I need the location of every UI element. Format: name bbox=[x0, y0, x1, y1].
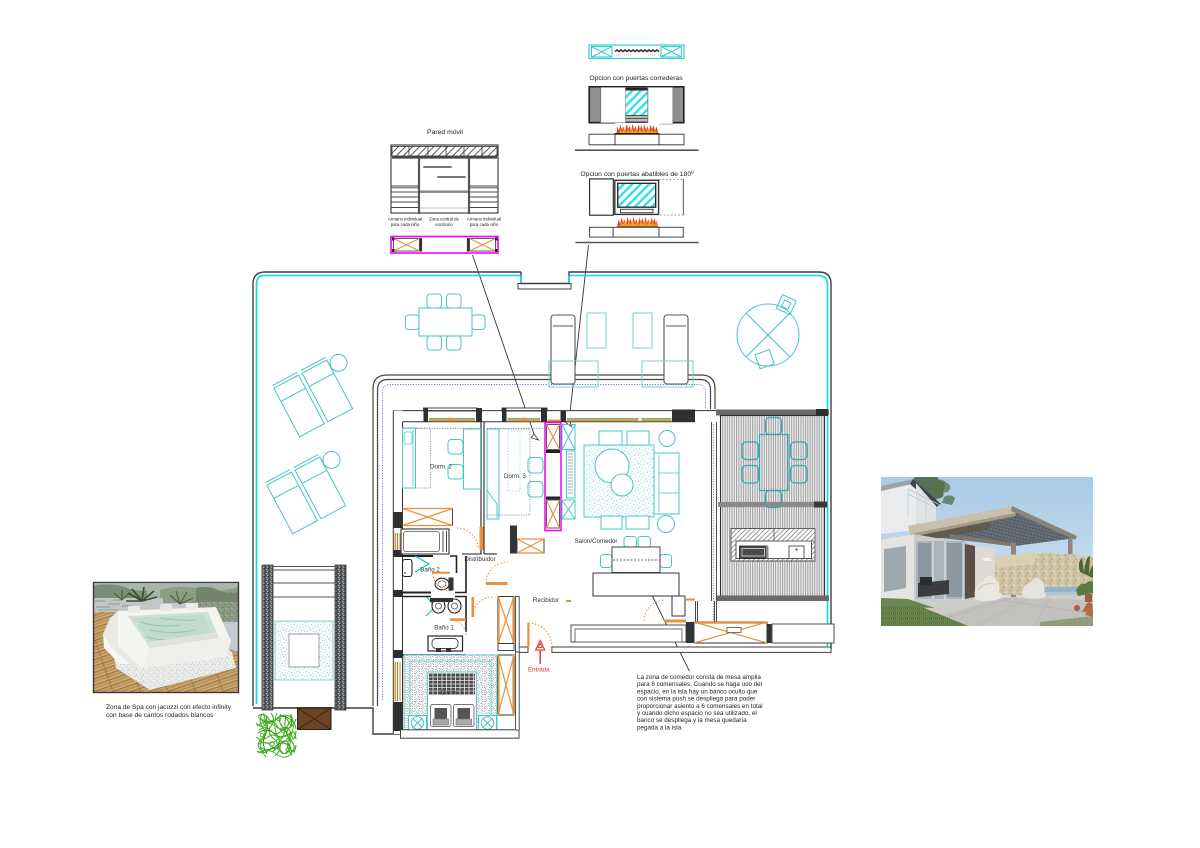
svg-text:Opcion con puertas correderas: Opcion con puertas correderas bbox=[589, 75, 683, 82]
svg-text:Baño 1: Baño 1 bbox=[434, 625, 454, 632]
svg-text:pegada a la isla.: pegada a la isla. bbox=[637, 724, 683, 731]
svg-text:La zona de comedor consta de m: La zona de comedor consta de mesa amplia bbox=[637, 674, 761, 681]
svg-text:Zona de Spa con jacuzzi con ef: Zona de Spa con jacuzzi con efecto infin… bbox=[106, 704, 232, 711]
svg-text:Zona central de: Zona central de bbox=[429, 217, 459, 222]
svg-text:proporcionar asiento a 6 comen: proporcionar asiento a 6 comensales en t… bbox=[637, 703, 763, 710]
svg-text:escritorio: escritorio bbox=[435, 222, 453, 227]
svg-text:y cuando dicho espacio no sea: y cuando dicho espacio no sea utilizado,… bbox=[637, 710, 757, 717]
svg-text:Salon/Comedor: Salon/Comedor bbox=[575, 538, 618, 545]
svg-text:Pared móvil: Pared móvil bbox=[427, 129, 463, 136]
svg-text:Entrada: Entrada bbox=[528, 667, 550, 674]
svg-text:Armario individual: Armario individual bbox=[388, 217, 422, 222]
svg-text:Dorm. 1: Dorm. 1 bbox=[441, 690, 464, 697]
svg-text:Opcion con puertas abatibles d: Opcion con puertas abatibles de 180º bbox=[580, 171, 694, 178]
svg-text:con sistema push se despliega: con sistema push se despliega para poder bbox=[637, 696, 755, 703]
svg-text:Distribuidor: Distribuidor bbox=[464, 556, 495, 563]
svg-text:banco se despliega y la mesa q: banco se despliega y la mesa quedaría bbox=[637, 717, 747, 724]
svg-text:Dorm. 2: Dorm. 2 bbox=[430, 464, 453, 471]
svg-text:Recibidor: Recibidor bbox=[533, 597, 559, 604]
svg-text:con base de cantos rodados bla: con base de cantos rodados blancos bbox=[106, 712, 214, 719]
svg-text:Dorm. 3: Dorm. 3 bbox=[504, 473, 527, 480]
svg-text:Armario individual: Armario individual bbox=[467, 217, 501, 222]
svg-text:para cada niño: para cada niño bbox=[470, 222, 499, 227]
svg-text:para cada niño: para cada niño bbox=[391, 222, 420, 227]
svg-text:espacio, en la isla hay un ban: espacio, en la isla hay un banco oculto … bbox=[637, 688, 758, 695]
svg-text:para 6 comensales. Cuando se: para 6 comensales. Cuando se haga uso de… bbox=[637, 681, 762, 688]
